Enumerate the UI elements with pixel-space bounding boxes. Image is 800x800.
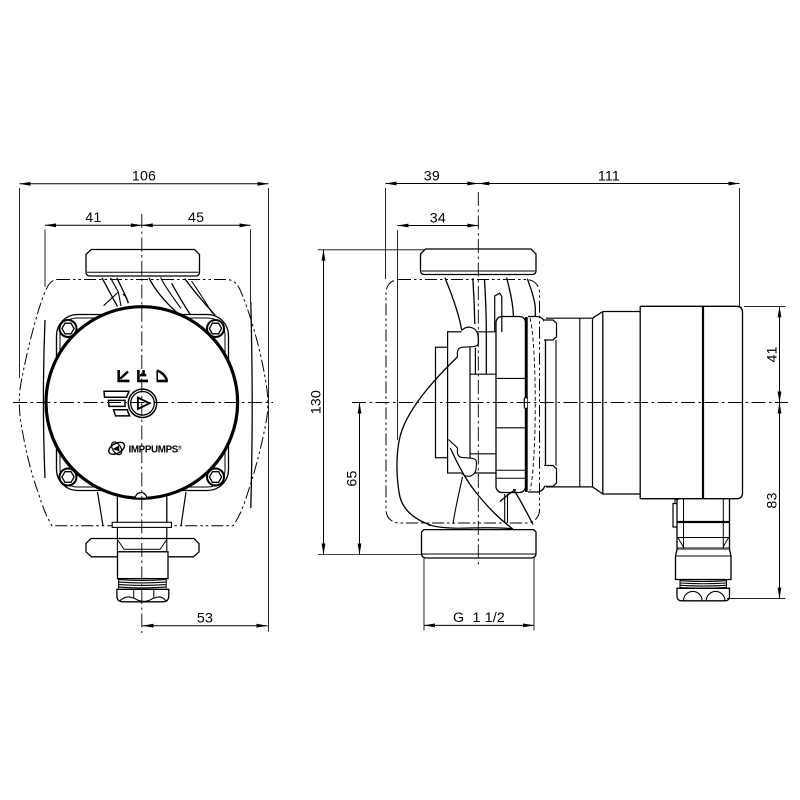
svg-text:IMPPUMPS®: IMPPUMPS® [129, 444, 182, 455]
svg-text:130: 130 [308, 390, 324, 414]
svg-text:106: 106 [132, 169, 156, 185]
svg-text:83: 83 [764, 492, 780, 508]
svg-text:G 1 1/2: G 1 1/2 [453, 610, 505, 626]
svg-text:45: 45 [188, 210, 204, 226]
svg-text:34: 34 [430, 210, 446, 226]
svg-text:111: 111 [598, 168, 620, 184]
svg-text:41: 41 [764, 346, 780, 362]
svg-text:53: 53 [197, 611, 213, 627]
svg-text:41: 41 [85, 210, 101, 226]
svg-text:39: 39 [424, 168, 440, 184]
svg-text:65: 65 [344, 470, 360, 486]
